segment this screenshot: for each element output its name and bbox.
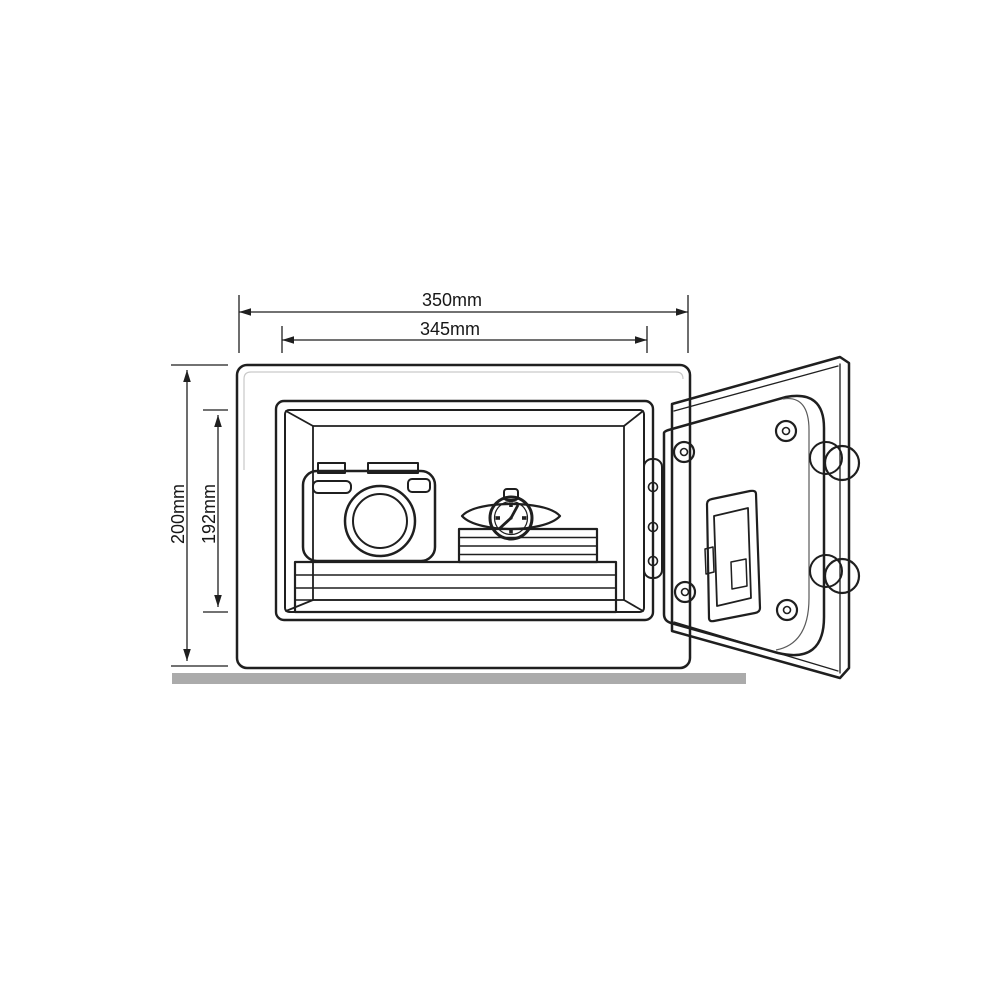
camera-flash	[408, 479, 430, 492]
dimension-label-192mm: 192mm	[199, 484, 219, 544]
watch-tick-6	[509, 529, 513, 534]
shelf-outline	[295, 562, 616, 612]
perspective-line-top-right	[624, 411, 643, 426]
book-stack-icon	[459, 529, 597, 562]
hinge-screw-dot	[652, 560, 654, 562]
safe-body-bevel	[244, 372, 683, 470]
diagram-canvas: 350mm 345mm 200mm 192mm	[0, 0, 1000, 1000]
dimension-label-200mm: 200mm	[168, 484, 188, 544]
screw-center	[784, 607, 791, 614]
arrow-up-icon	[183, 370, 191, 382]
compartment-latch	[705, 547, 714, 574]
watch-tick-9	[496, 516, 501, 520]
hinge-screw-dot	[652, 486, 654, 488]
arrow-right-icon	[676, 308, 688, 316]
arrow-down-icon	[214, 595, 222, 607]
watch-tick-3	[522, 516, 527, 520]
safe-door-open	[664, 357, 859, 678]
locking-bolt-icon	[810, 555, 859, 593]
arrow-left-icon	[239, 308, 251, 316]
perspective-line-bottom-right	[624, 600, 643, 611]
screw-icon	[675, 582, 695, 602]
shelf-stack-icon	[295, 562, 616, 612]
camera-viewfinder	[313, 481, 351, 493]
screw-ring	[675, 582, 695, 602]
safe-interior	[276, 401, 653, 620]
screw-ring	[777, 600, 797, 620]
screw-center	[681, 449, 688, 456]
perspective-line-top-left	[286, 411, 313, 426]
watch-hour-hand	[500, 518, 512, 529]
dimension-label-345mm: 345mm	[420, 319, 480, 339]
perspective-line-bottom-left	[286, 600, 313, 611]
watch-minute-hand	[511, 506, 518, 518]
battery-compartment	[705, 491, 760, 621]
camera-icon	[303, 463, 435, 561]
safe-dimension-diagram: 350mm 345mm 200mm 192mm	[0, 0, 1000, 1000]
ground-line	[172, 673, 746, 684]
screw-icon	[777, 600, 797, 620]
arrow-up-icon	[214, 415, 222, 427]
watch-center-pin	[509, 516, 512, 519]
arrow-down-icon	[183, 649, 191, 661]
door-screws	[674, 421, 797, 620]
interior-walls	[285, 410, 644, 612]
screw-ring	[776, 421, 796, 441]
screw-center	[783, 428, 790, 435]
camera-lens-outer	[345, 486, 415, 556]
watch-icon	[462, 489, 560, 539]
arrow-right-icon	[635, 336, 647, 344]
interior-rim	[276, 401, 653, 620]
screw-icon	[776, 421, 796, 441]
ground-bar	[172, 673, 746, 684]
dimension-label-350mm: 350mm	[422, 290, 482, 310]
watch-tick-12	[509, 503, 513, 508]
interior-back-wall	[313, 426, 624, 600]
arrow-left-icon	[282, 336, 294, 344]
locking-bolt-icon	[810, 442, 859, 480]
compartment-label	[731, 559, 747, 589]
door-panel-curve	[776, 399, 809, 650]
dimension-width-inner: 345mm	[282, 319, 647, 353]
hinge-screw-dot	[652, 526, 654, 528]
compartment-lid	[714, 508, 751, 606]
dimension-height-inner: 192mm	[199, 410, 228, 612]
camera-lens-inner	[353, 494, 407, 548]
screw-center	[682, 589, 689, 596]
